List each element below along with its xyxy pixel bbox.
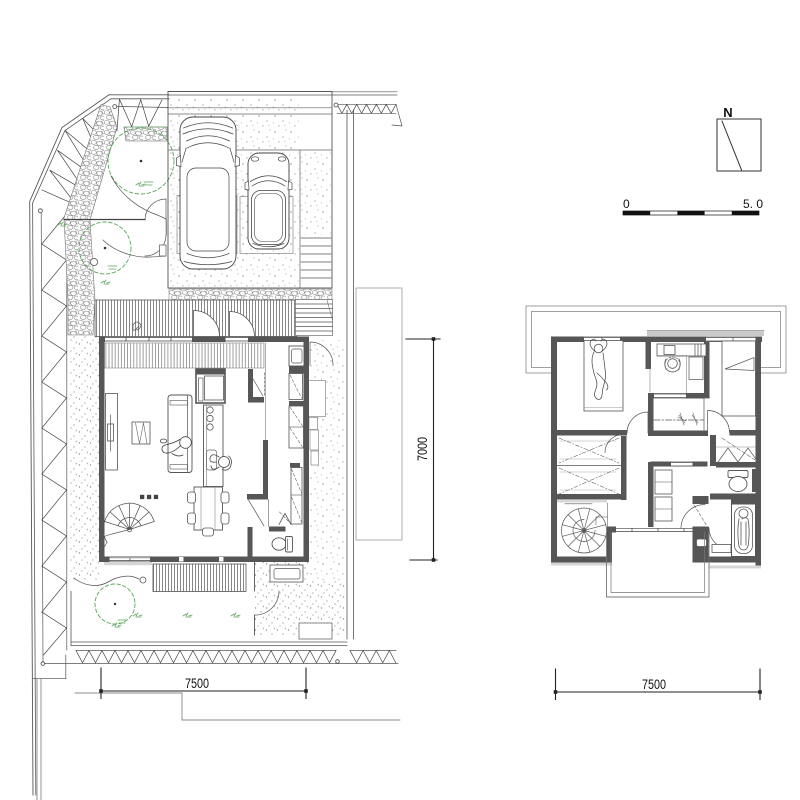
svg-text:7500: 7500	[185, 675, 209, 691]
svg-text:5. 0: 5. 0	[743, 197, 763, 211]
svg-text:0: 0	[623, 197, 630, 211]
svg-text:7500: 7500	[642, 676, 666, 692]
svg-text:N: N	[723, 105, 732, 120]
svg-text:7000: 7000	[414, 437, 430, 461]
